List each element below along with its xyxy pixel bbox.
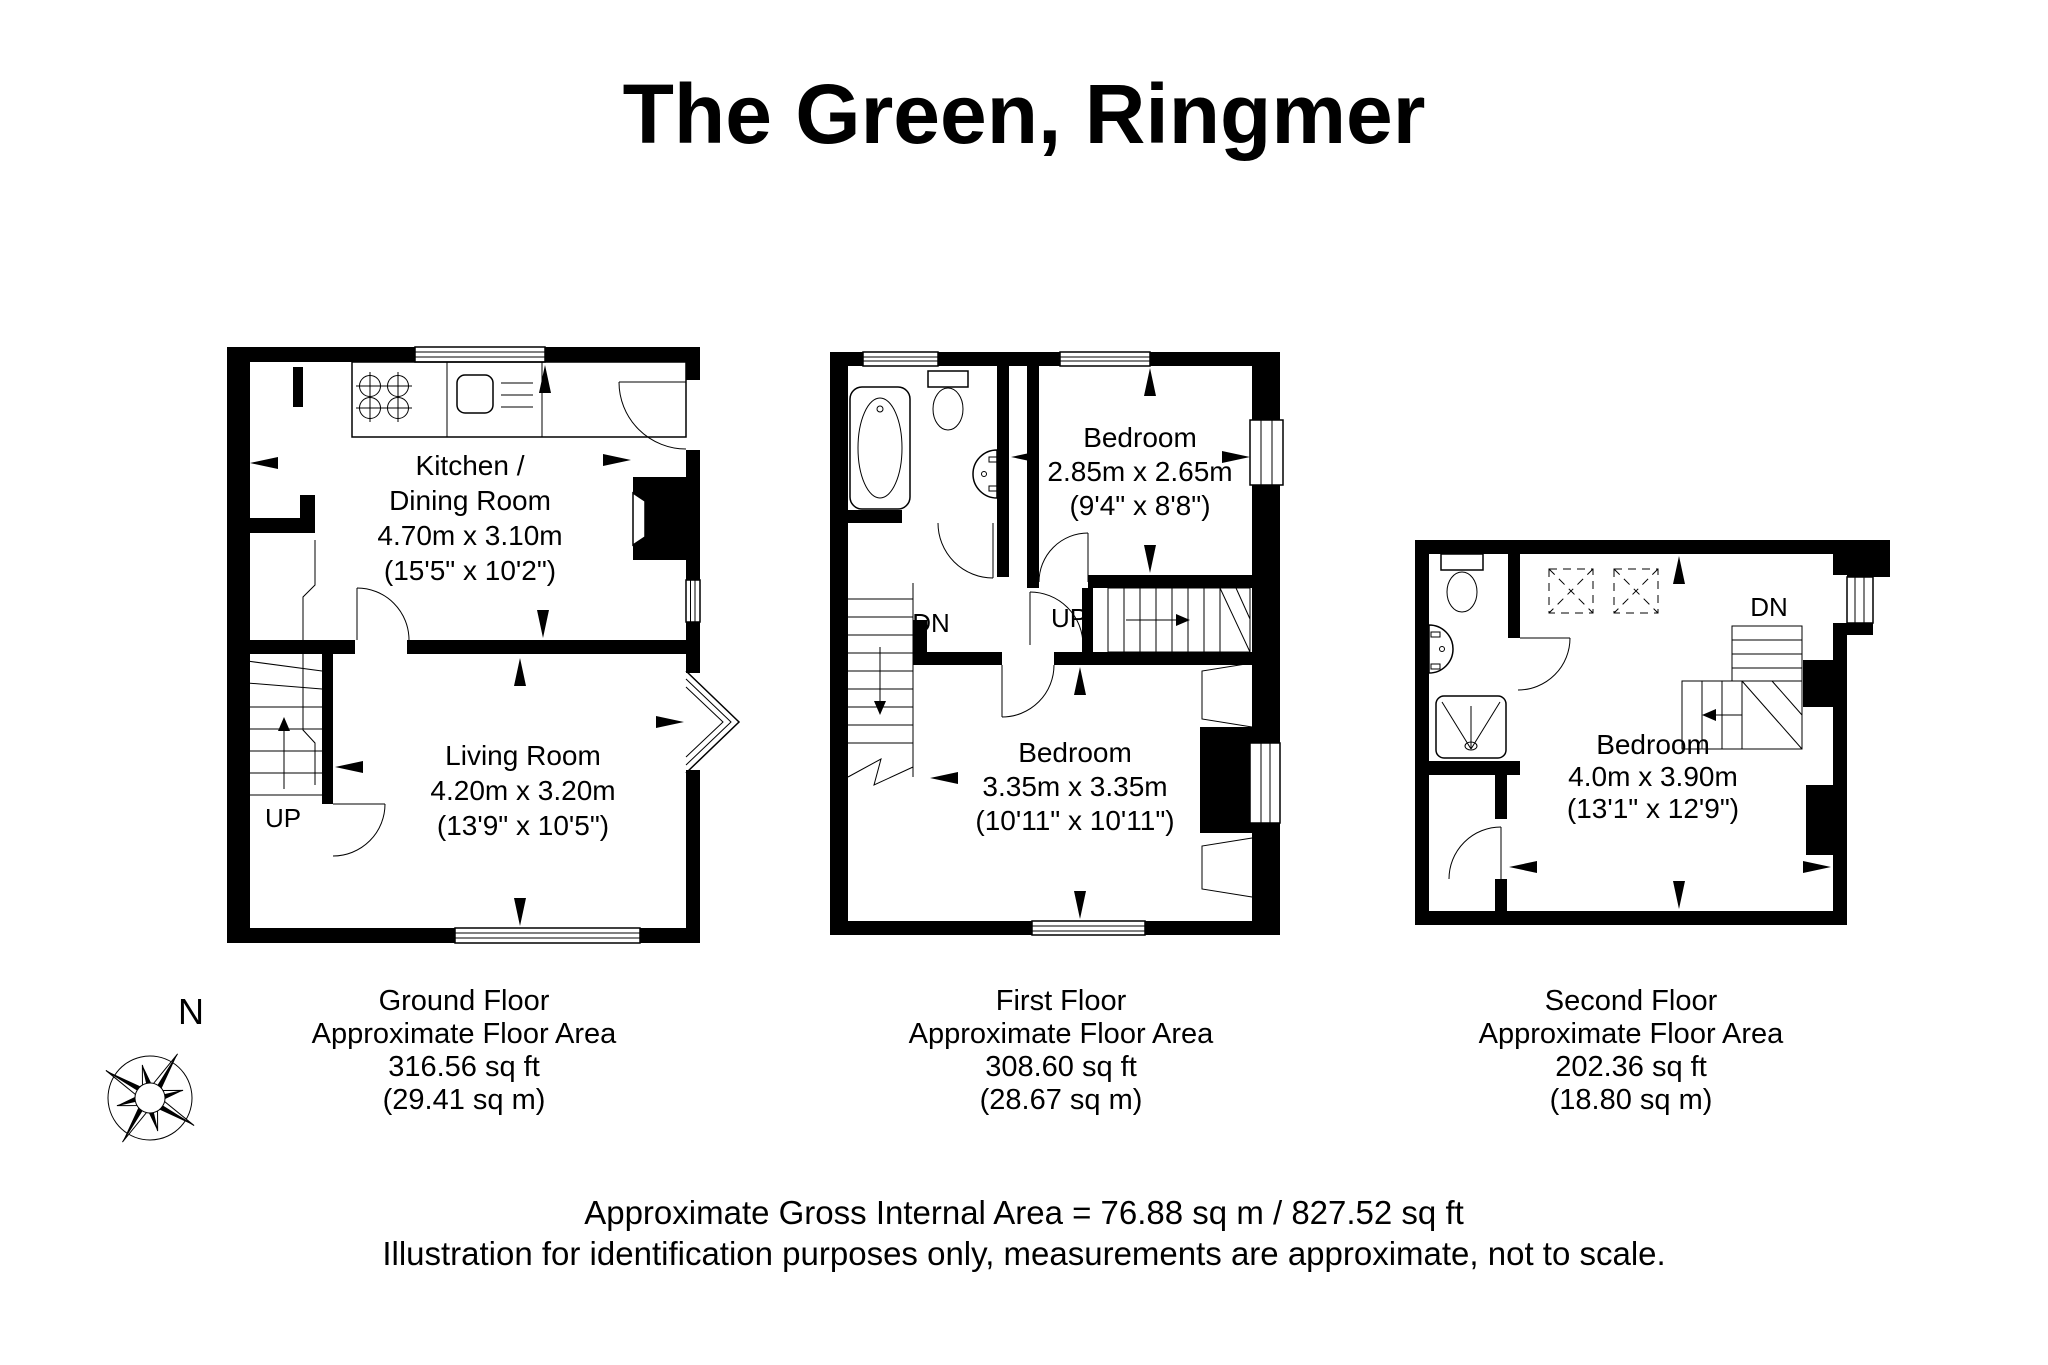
- svg-text:(13'1" x 12'9"): (13'1" x 12'9"): [1567, 793, 1739, 824]
- second-floor-plan: Bedroom 4.0m x 3.90m (13'1" x 12'9") DN: [1411, 536, 1911, 966]
- svg-text:Bedroom: Bedroom: [1018, 737, 1132, 768]
- caption-line: 316.56 sq ft: [264, 1051, 664, 1084]
- svg-text:4.20m x 3.20m: 4.20m x 3.20m: [430, 775, 615, 806]
- caption-line: Approximate Floor Area: [861, 1018, 1261, 1051]
- svg-text:(10'11" x 10'11"): (10'11" x 10'11"): [975, 805, 1174, 836]
- svg-text:(15'5" x 10'2"): (15'5" x 10'2"): [384, 555, 556, 586]
- sink-icon: [457, 375, 533, 413]
- shower-icon: [1436, 696, 1506, 758]
- second-stairs-down-label: DN: [1750, 592, 1788, 622]
- hob-icon: [356, 372, 412, 422]
- caption-line: (28.67 sq m): [861, 1084, 1261, 1117]
- caption-line: 308.60 sq ft: [861, 1051, 1261, 1084]
- caption-line: (18.80 sq m): [1431, 1084, 1831, 1117]
- living-room-label: Living Room 4.20m x 3.20m (13'9" x 10'5"…: [430, 740, 615, 841]
- gross-internal-area: Approximate Gross Internal Area = 76.88 …: [0, 1192, 2048, 1233]
- svg-text:Bedroom: Bedroom: [1596, 729, 1710, 760]
- svg-text:(9'4" x 8'8"): (9'4" x 8'8"): [1069, 490, 1210, 521]
- ground-stairs-up-label: UP: [265, 803, 301, 833]
- caption-line: First Floor: [861, 985, 1261, 1018]
- disclaimer: Illustration for identification purposes…: [0, 1233, 2048, 1274]
- svg-text:4.70m x 3.10m: 4.70m x 3.10m: [377, 520, 562, 551]
- shower-room-fixtures: [1429, 554, 1506, 758]
- basin-icon: [1429, 625, 1453, 673]
- skylight-icons: [1549, 569, 1658, 613]
- footer-notes: Approximate Gross Internal Area = 76.88 …: [0, 1192, 2048, 1274]
- kitchen-counter: [352, 362, 686, 437]
- caption-line: Ground Floor: [264, 985, 664, 1018]
- second-windows: [1847, 577, 1873, 623]
- bedroom2-label: Bedroom 3.35m x 3.35m (10'11" x 10'11"): [975, 737, 1174, 836]
- bedroom-label: Bedroom 4.0m x 3.90m (13'1" x 12'9"): [1567, 729, 1739, 824]
- floorplan-page: The Green, Ringmer: [0, 0, 2048, 1365]
- first-floor-caption: First Floor Approximate Floor Area 308.6…: [861, 985, 1261, 1117]
- toilet-icon: [928, 371, 968, 430]
- stairs-up: [1108, 588, 1250, 652]
- ground-floor-plan: Kitchen / Dining Room 4.70m x 3.10m (15'…: [225, 345, 770, 945]
- svg-text:Kitchen /: Kitchen /: [416, 450, 525, 481]
- bay-window: [686, 671, 739, 773]
- svg-text:(13'9" x 10'5"): (13'9" x 10'5"): [437, 810, 609, 841]
- svg-text:4.0m x 3.90m: 4.0m x 3.90m: [1568, 761, 1738, 792]
- first-stairs-up-label: UP: [1051, 603, 1087, 633]
- toilet-icon: [1441, 554, 1483, 612]
- caption-line: Approximate Floor Area: [264, 1018, 664, 1051]
- second-floor-caption: Second Floor Approximate Floor Area 202.…: [1431, 985, 1831, 1117]
- stairs-down: [848, 583, 913, 785]
- fireplace-recess: [633, 493, 645, 545]
- ground-stairs: [247, 661, 322, 795]
- basin-icon: [973, 450, 998, 498]
- caption-line: Approximate Floor Area: [1431, 1018, 1831, 1051]
- first-stairs-down-label: DN: [912, 608, 950, 638]
- svg-text:3.35m x 3.35m: 3.35m x 3.35m: [982, 771, 1167, 802]
- caption-line: Second Floor: [1431, 985, 1831, 1018]
- svg-text:Living Room: Living Room: [445, 740, 601, 771]
- bath-icon: [850, 387, 910, 509]
- caption-line: 202.36 sq ft: [1431, 1051, 1831, 1084]
- alcove-outline: [303, 540, 315, 785]
- svg-text:Dining Room: Dining Room: [389, 485, 551, 516]
- compass-north-label: N: [178, 991, 204, 1032]
- kitchen-label: Kitchen / Dining Room 4.70m x 3.10m (15'…: [377, 450, 562, 586]
- page-title: The Green, Ringmer: [0, 66, 2048, 163]
- first-walls: [830, 352, 1280, 935]
- ground-floor-caption: Ground Floor Approximate Floor Area 316.…: [264, 985, 664, 1117]
- bathroom-fixtures: [850, 371, 998, 509]
- svg-text:2.85m x 2.65m: 2.85m x 2.65m: [1047, 456, 1232, 487]
- compass-rose-icon: N: [55, 980, 245, 1185]
- bedroom1-label: Bedroom 2.85m x 2.65m (9'4" x 8'8"): [1047, 422, 1232, 521]
- caption-line: (29.41 sq m): [264, 1084, 664, 1117]
- svg-text:Bedroom: Bedroom: [1083, 422, 1197, 453]
- first-floor-plan: Bedroom 2.85m x 2.65m (9'4" x 8'8") Bedr…: [826, 347, 1326, 947]
